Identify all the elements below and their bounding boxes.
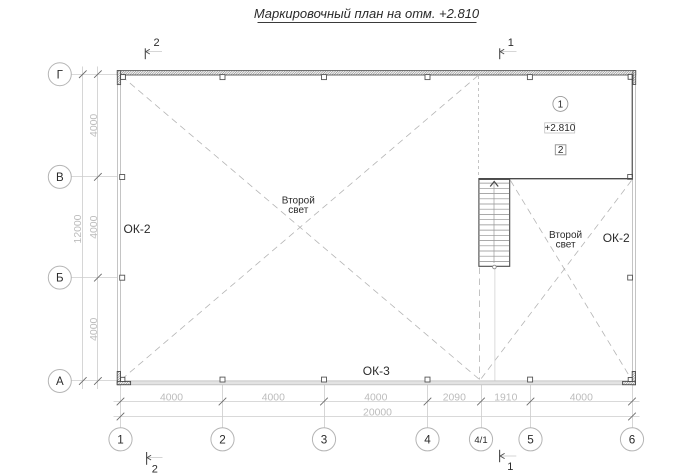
- svg-text:2: 2: [219, 434, 226, 447]
- svg-text:Б: Б: [56, 273, 64, 285]
- svg-text:2: 2: [152, 464, 158, 474]
- svg-text:4000: 4000: [570, 392, 593, 403]
- svg-text:12000: 12000: [73, 214, 84, 243]
- svg-text:В: В: [56, 172, 64, 184]
- svg-text:4000: 4000: [89, 114, 100, 137]
- svg-text:6: 6: [629, 434, 636, 447]
- svg-text:свет: свет: [556, 240, 576, 251]
- svg-text:1910: 1910: [494, 392, 517, 403]
- svg-text:2: 2: [558, 145, 564, 156]
- svg-text:2090: 2090: [443, 392, 466, 403]
- svg-text:4000: 4000: [262, 392, 285, 403]
- svg-text:Маркировочный план на отм. +2.: Маркировочный план на отм. +2.810: [254, 6, 480, 21]
- svg-text:свет: свет: [288, 205, 308, 216]
- svg-text:3: 3: [321, 434, 328, 447]
- svg-text:+2.810: +2.810: [544, 123, 575, 134]
- svg-text:4/1: 4/1: [474, 435, 487, 446]
- svg-text:ОК-2: ОК-2: [124, 222, 151, 236]
- svg-text:1: 1: [117, 434, 124, 447]
- svg-text:5: 5: [527, 434, 534, 447]
- svg-text:ОК-2: ОК-2: [603, 231, 630, 245]
- svg-text:4000: 4000: [160, 392, 183, 403]
- svg-text:4000: 4000: [89, 215, 100, 238]
- svg-text:2: 2: [153, 37, 159, 49]
- svg-text:ОК-3: ОК-3: [363, 364, 390, 378]
- svg-text:4: 4: [424, 434, 431, 447]
- svg-text:1: 1: [508, 37, 514, 49]
- svg-text:4000: 4000: [364, 392, 387, 403]
- svg-text:20000: 20000: [363, 407, 392, 418]
- svg-text:Г: Г: [57, 69, 64, 81]
- svg-text:4000: 4000: [89, 318, 100, 341]
- svg-text:1: 1: [507, 461, 513, 473]
- svg-text:1: 1: [558, 100, 564, 111]
- svg-text:А: А: [56, 376, 64, 388]
